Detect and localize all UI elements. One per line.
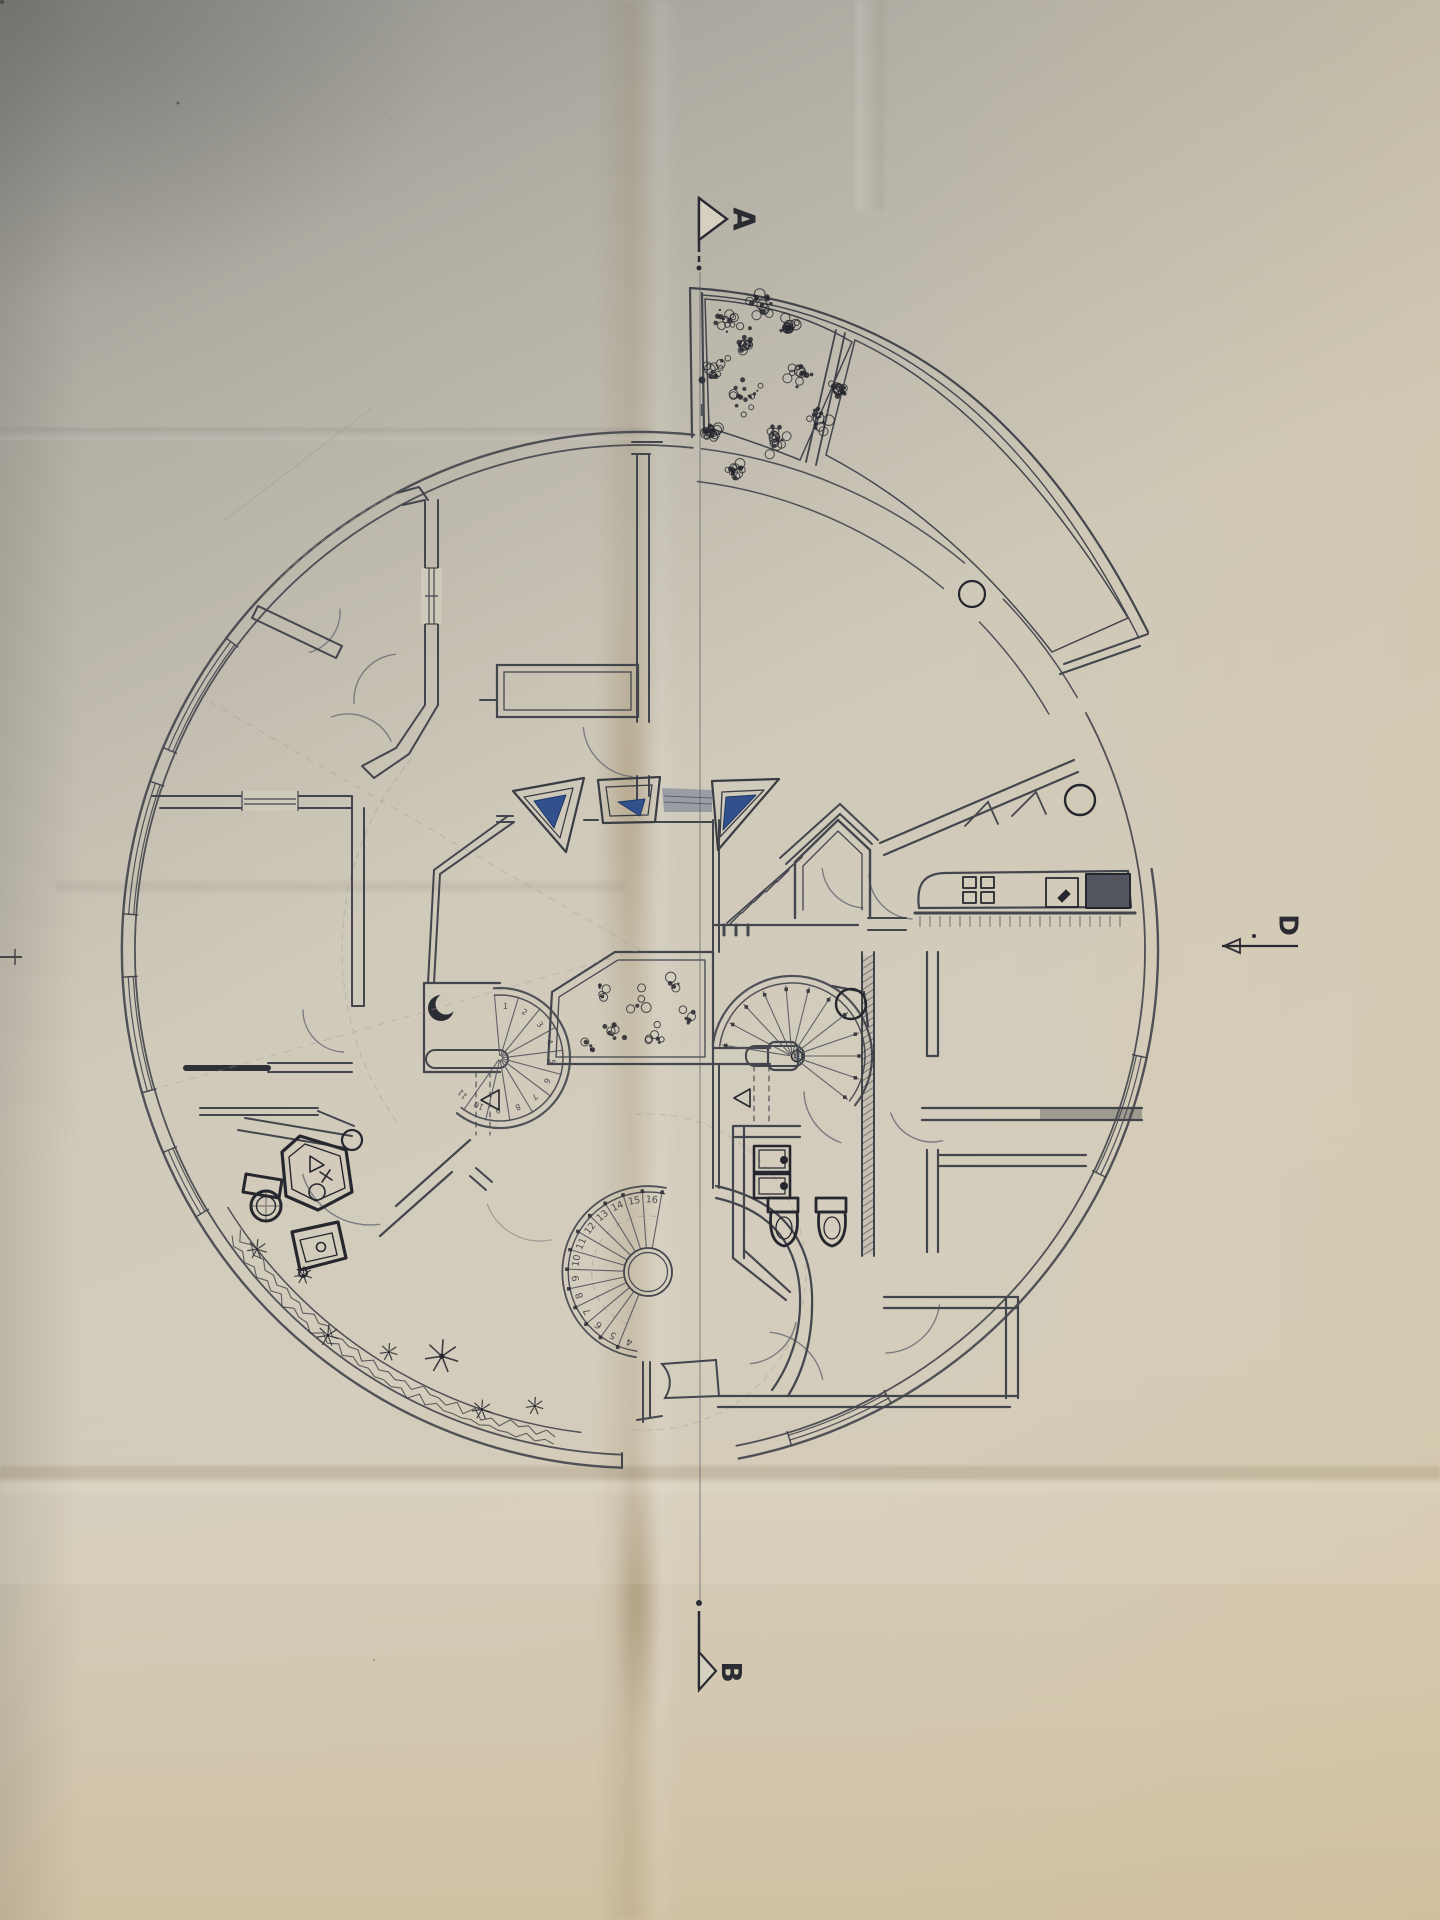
marker-a-flag: [699, 198, 727, 240]
window-glazing-arc: [168, 642, 231, 750]
window-end-tick: [149, 781, 164, 786]
plant-scribble-dot: [756, 390, 758, 392]
outer-wall-left-in: [135, 504, 622, 1455]
daisy-petal: [536, 1408, 539, 1415]
terrace-corridor-4: [698, 482, 944, 589]
stair-right-wall-out: [713, 976, 872, 1105]
plant-scribble-dot: [719, 309, 721, 311]
plant-scribble-dot: [740, 377, 745, 382]
stair-bottom-hub-inner: [629, 1253, 668, 1292]
plant-scribble-dot: [622, 1035, 627, 1040]
skylight-glass-left: [534, 795, 566, 828]
plant-scribble-dot: [713, 321, 718, 326]
stair-left-number: 2: [520, 1007, 529, 1017]
stair-right-tread: [794, 1057, 859, 1079]
stair-bottom-dot: [641, 1189, 645, 1193]
plant-scribble-circle: [654, 1021, 660, 1027]
plant-scribble-dot: [799, 373, 801, 375]
plant-scribble-circle: [641, 1003, 651, 1013]
plant-scribble-dot: [738, 344, 741, 347]
window-glazing-arc: [790, 1398, 889, 1440]
door-vestibule: [822, 869, 863, 908]
stair-right-tread: [794, 1033, 859, 1055]
plant-scribble-dot: [734, 386, 738, 390]
terrace-junction-column: [959, 581, 985, 607]
daisy-petal: [389, 1343, 390, 1350]
kitchen-sink: [1046, 878, 1078, 907]
stair-left-threshold: [470, 1168, 492, 1190]
daisy-center: [255, 1248, 258, 1251]
door-kitchen: [869, 875, 912, 919]
washbasin-left-inner: [300, 1233, 337, 1262]
daisy-petal: [380, 1352, 387, 1353]
marker-d-letter: D: [1273, 914, 1303, 936]
stair-bottom-number: 8: [574, 1291, 586, 1300]
marker-b-letter: B: [715, 1661, 748, 1682]
section-marker-d: D: [1222, 914, 1303, 953]
stair-left-number: 11: [456, 1087, 470, 1101]
plant-scribble-circle: [638, 996, 645, 1003]
plant-scribble-circle: [725, 356, 731, 362]
plant-scribble-dot: [590, 1048, 592, 1050]
right-wall-4: [938, 1155, 1086, 1166]
plant-scribble-circle: [730, 323, 735, 328]
right-wall-3: [927, 1150, 938, 1252]
plant-band-inner: [228, 1208, 581, 1433]
plant-scribble-circle: [783, 374, 792, 383]
door-hall-2: [332, 714, 392, 741]
plant-scribble-dot: [738, 466, 743, 471]
stair-bottom-dot: [584, 1322, 588, 1326]
pencil-radial-1: [203, 698, 640, 950]
section-marker-b: B: [696, 1600, 748, 1690]
bridge-wall: [713, 1048, 770, 1064]
stair-bottom-dot: [603, 1202, 607, 1206]
outer-wall-left: [122, 493, 622, 1468]
plant-scribble-dot: [742, 335, 747, 340]
stair-bottom-dot: [568, 1248, 572, 1252]
stair-right-dot: [806, 989, 810, 993]
stair-left-number: 4: [544, 1038, 554, 1046]
window-glazing-arc: [168, 1150, 201, 1214]
plant-scribble-dot: [748, 395, 751, 398]
daisy-petal: [528, 1400, 533, 1405]
plant-scribble-dot: [765, 296, 771, 302]
door-hall-1: [354, 654, 395, 703]
section-marker-a: A: [697, 197, 761, 271]
daisy-petal: [429, 1345, 440, 1355]
stair-right-dot: [843, 1013, 847, 1017]
plant-scribble-dot: [713, 374, 719, 380]
plant-scribble-dot: [748, 326, 752, 330]
plant-scribble-dot: [738, 395, 743, 400]
plant-scribble-dot: [589, 1044, 592, 1047]
section-line-dot: [699, 377, 706, 384]
kitchen-vents: [965, 792, 1046, 826]
daisy-petal: [444, 1347, 456, 1355]
left-mid-wall-thin: [268, 1063, 352, 1072]
moss-zigzag: [232, 1236, 554, 1445]
stair-left-number: 7: [530, 1092, 540, 1102]
daisy-petal: [259, 1244, 266, 1249]
stove-burner-2: [981, 877, 994, 888]
stove-burner-3: [963, 892, 976, 903]
wall-upper-left-radial: [252, 606, 342, 658]
daisy-petal: [483, 1404, 490, 1409]
skylight-wall-stub: [497, 816, 713, 822]
stair-right-tread: [794, 1057, 848, 1100]
sanitary-basin-2-tap: [780, 1182, 788, 1190]
stair-bottom-number: 9: [571, 1275, 582, 1282]
plant-scribble-dot: [727, 318, 732, 323]
daisy-petal: [444, 1357, 458, 1362]
door-left-lower: [487, 1204, 551, 1241]
stair-bottom-dot: [616, 1345, 620, 1349]
plant-scribble-dot: [779, 329, 782, 332]
stair-bottom-dot: [621, 1193, 625, 1197]
plant-scribble-circle: [679, 1006, 687, 1014]
stair-left-tread: [500, 1060, 510, 1121]
pencil-diagonal-topleft: [225, 408, 372, 520]
plant-scribble-circle: [651, 1031, 659, 1039]
bath-diagonal-wall: [238, 1118, 352, 1148]
daisy-petal: [384, 1354, 388, 1360]
door-hall-3: [310, 609, 340, 652]
shower-tray-inner: [289, 1144, 345, 1201]
window-glazing-arc: [173, 1148, 205, 1211]
stair-left-number: 9: [495, 1105, 500, 1114]
stair-left-number: 6: [542, 1077, 552, 1086]
plant-scribble-circle: [638, 984, 646, 992]
plant-scribble-dot: [773, 444, 776, 447]
plant-scribble-circle: [749, 405, 754, 410]
sanitary-basin-1-tap: [780, 1156, 788, 1164]
hatching: [862, 916, 1120, 1256]
daisy-petal: [526, 1406, 533, 1407]
stair-right-dot: [827, 998, 831, 1002]
stair-bottom-dot: [599, 1336, 603, 1340]
daisy-petal: [299, 1277, 303, 1283]
plant-scribble-dot: [814, 423, 818, 427]
door-right-3: [886, 1305, 940, 1353]
plant-scribble-dot: [754, 298, 758, 302]
stair-right-arrow: [734, 1089, 750, 1107]
planter-triangle: [548, 952, 713, 1064]
daisy-petal: [530, 1408, 534, 1414]
shower-drain: [309, 1184, 325, 1200]
daisy-petal: [391, 1353, 398, 1355]
marker-b-flag: [699, 1652, 716, 1690]
stair-right-dot: [745, 1005, 749, 1009]
flight-ticks: [730, 870, 789, 924]
daisy-center: [387, 1350, 390, 1353]
hall-faceted-edge: [428, 816, 514, 983]
vestibule-walls-inner: [803, 831, 862, 910]
stair-bottom-dot: [660, 1190, 664, 1194]
daisy-center: [480, 1408, 483, 1411]
plant-scribble-dot: [769, 302, 773, 306]
stair-right-dot: [854, 1032, 858, 1036]
daisy-petal: [443, 1358, 449, 1372]
plant-scribble-circle: [718, 322, 726, 330]
stair-right-dot: [731, 1023, 735, 1027]
daisy-petal: [382, 1346, 387, 1351]
daisy-petal: [391, 1347, 397, 1351]
construct-bottom: [634, 1114, 806, 1430]
daisy-petal: [536, 1401, 542, 1405]
plant-scribble-dot: [611, 1034, 614, 1037]
plant-scribble-dot: [798, 364, 803, 369]
section-line-ab: [699, 272, 706, 1600]
plant-scribble-circle: [796, 377, 804, 385]
plant-scribble-circle: [737, 323, 744, 330]
skylight-triangle-right: [712, 779, 779, 850]
plant-scribble-dot: [742, 387, 746, 391]
window-gap-2: [242, 791, 298, 811]
terrace-outer-arc: [690, 288, 1148, 632]
floor-plan-drawing: 123456789101116151413121110987654 A B D: [0, 0, 1440, 1920]
plant-scribble-dot: [735, 404, 739, 408]
marker-a-dot: [697, 266, 702, 271]
daisy-petal: [304, 1277, 307, 1284]
left-room-right-wall: [352, 796, 364, 1006]
plant-scribble-dot: [795, 385, 798, 388]
plant-scribble-dot: [743, 397, 748, 402]
stair-right-dot: [784, 988, 788, 992]
stair-left-corridor: [380, 1140, 470, 1236]
wall-hall-corner: [362, 705, 438, 778]
kitchen-shelf: [868, 918, 906, 930]
plant-scribble-dot: [810, 373, 814, 377]
daisy-petal: [304, 1266, 305, 1273]
daisy-center: [326, 1334, 330, 1338]
daisy-petal: [259, 1250, 267, 1252]
plant-scribble-circle: [807, 416, 813, 422]
daisy-petal: [305, 1276, 312, 1278]
stair-right-dot: [724, 1044, 728, 1048]
daisy-petal: [390, 1354, 393, 1361]
plant-scribble-dot: [731, 468, 736, 473]
plant-scribble-dot: [635, 1004, 639, 1008]
stair-bottom-number: 16: [645, 1194, 658, 1206]
terrace-right-edge: [1060, 634, 1148, 674]
photographed-floor-plan: 123456789101116151413121110987654 A B D: [0, 0, 1440, 1920]
stair-bottom-number: 15: [627, 1195, 641, 1208]
stair-bottom-number: 7: [581, 1306, 594, 1317]
door-right-2: [804, 1092, 841, 1143]
plant-scribble-circle: [627, 1005, 635, 1013]
plant-scribble-dot: [816, 407, 820, 411]
stair-bottom-number: 14: [610, 1199, 626, 1214]
outer-wall-right-in: [736, 713, 1145, 1446]
washbasin-left-drain: [317, 1243, 326, 1252]
daisy-petal: [535, 1397, 536, 1404]
daisy-center: [533, 1404, 536, 1407]
stair-bottom-dot: [573, 1306, 577, 1310]
marker-d-dot: [1252, 934, 1256, 938]
shower-triangle-symbol: [310, 1156, 324, 1172]
window-end-tick: [195, 1209, 209, 1217]
terrace-outer-arc-inner: [702, 295, 1139, 638]
stair-right-dot: [857, 1054, 861, 1058]
plant-scribble-dot: [715, 314, 720, 319]
planting-scribbles: [232, 289, 847, 1445]
shower-cross-symbol: [320, 1170, 332, 1182]
stair-left-tread: [501, 1008, 540, 1056]
bench-outline: [497, 665, 638, 717]
stair-right-tread: [729, 1023, 790, 1055]
construction-lines: [155, 408, 640, 1089]
kitchen-column: [1065, 785, 1095, 815]
daisy-center: [302, 1274, 305, 1277]
daisy-petal: [433, 1358, 441, 1371]
stair-right-dashes: [754, 1066, 769, 1122]
stair-left-tread: [494, 994, 499, 1056]
daisy-petal: [329, 1337, 332, 1345]
right-wall-1: [927, 952, 938, 1056]
plant-scribble-dot: [691, 1010, 696, 1015]
daisy-petal: [247, 1250, 255, 1251]
plant-scribble-dot: [726, 331, 728, 333]
terrace-corridor-1: [1003, 599, 1077, 697]
stair-bottom-dot: [567, 1287, 571, 1291]
plant-scribble-dot: [818, 415, 821, 418]
marker-b-dot: [696, 1600, 702, 1606]
stair-bottom-tread: [565, 1269, 624, 1271]
plant-scribble-dot: [658, 1041, 661, 1044]
stair-bottom-dot: [576, 1230, 580, 1234]
bath-column: [342, 1130, 362, 1150]
plant-scribble-dot: [601, 995, 604, 998]
plant-scribble-circle: [782, 432, 791, 441]
stair-left-hub: [426, 1050, 508, 1068]
landing-crescent-light: [436, 994, 457, 1015]
kitchen-tap: [1058, 890, 1070, 902]
stair-bottom-number: 5: [608, 1329, 619, 1342]
stair-bottom-dot: [565, 1267, 569, 1271]
stove-burner-1: [963, 877, 976, 888]
plant-scribble-dot: [677, 983, 679, 985]
plant-scribble-circle: [758, 383, 763, 388]
marker-a-letter: A: [726, 207, 761, 231]
stair-right-tread: [793, 997, 831, 1055]
vestibule-outer-pentagon: [780, 804, 878, 864]
daisy-petal: [425, 1357, 440, 1359]
plant-scribble-dot: [711, 425, 713, 427]
flight-stringer: [727, 857, 802, 923]
plant-scribble-circle: [666, 972, 676, 982]
entry-stubs: [622, 1362, 662, 1468]
plant-scribble-circle: [752, 311, 761, 320]
plant-scribble-dot: [739, 348, 744, 353]
fixtures: [243, 581, 1130, 1277]
washbasin-left: [292, 1222, 346, 1270]
window-end-tick: [1092, 1171, 1106, 1178]
stove-burner-4: [981, 892, 994, 903]
skylight-shade-band: [662, 788, 712, 812]
toilet-3-bowl-inner: [824, 1217, 840, 1239]
plant-scribble-circle: [765, 450, 774, 459]
stair-left-number: 1: [502, 1002, 508, 1011]
bench-inner: [504, 672, 631, 710]
plant-scribble-dot: [603, 1024, 608, 1029]
wall-top-step: [632, 442, 662, 454]
construct-top-left: [280, 493, 397, 578]
skylight-glass-mid: [618, 799, 645, 816]
plant-scribble-circle: [741, 412, 746, 417]
stair-bottom-number: 6: [593, 1319, 605, 1331]
stair-left-number: 8: [514, 1102, 522, 1112]
toilet-3-tank: [816, 1198, 846, 1212]
daisy-petal: [482, 1400, 483, 1408]
plant-scribble-dot: [584, 1040, 589, 1045]
door-right-1: [891, 1113, 943, 1142]
plant-scribble-dot: [753, 392, 756, 395]
entry-step-wedge: [662, 1360, 719, 1398]
kitchen-counter-dark: [1086, 874, 1130, 908]
stair-left-number: 3: [535, 1020, 545, 1030]
plant-scribble-dot: [671, 984, 676, 989]
stair-bottom-hub-outer: [624, 1248, 672, 1296]
kitchen-diagonal-wall: [880, 760, 1078, 855]
stair-right-dot: [854, 1076, 858, 1080]
window-end-tick: [122, 976, 138, 977]
stair-bottom-dot: [588, 1214, 592, 1218]
plant-scribble-dot: [598, 983, 602, 987]
wall-center-vertical: [637, 454, 649, 802]
stair-right-dot: [843, 1095, 847, 1099]
stair-right-dot: [763, 993, 767, 997]
section-marker-left-end: [0, 949, 22, 965]
stair-bottom-number: 4: [625, 1335, 634, 1347]
moss-zigzag: [240, 1230, 555, 1437]
door-wedge-room: [583, 728, 632, 777]
flight-base-stubs: [724, 925, 748, 935]
shower-tray: [282, 1136, 352, 1210]
plant-scribble-dot: [612, 1022, 617, 1027]
stair-bottom-number: 10: [571, 1254, 584, 1268]
skylight-group: [513, 777, 779, 852]
plant-scribble-dot: [685, 1017, 688, 1020]
daisy-center: [439, 1354, 444, 1359]
stair-bottom-number: 11: [574, 1236, 589, 1251]
curved-window-glazing: [122, 638, 1148, 1447]
plant-scribble-dot: [613, 1036, 617, 1040]
daisy-petal: [442, 1339, 443, 1354]
stair-left-number: 5: [547, 1059, 556, 1065]
daisy-petal: [537, 1407, 544, 1409]
daisy-petal: [257, 1239, 258, 1247]
daisy-petal: [483, 1411, 486, 1418]
door-left-room: [303, 1010, 344, 1052]
